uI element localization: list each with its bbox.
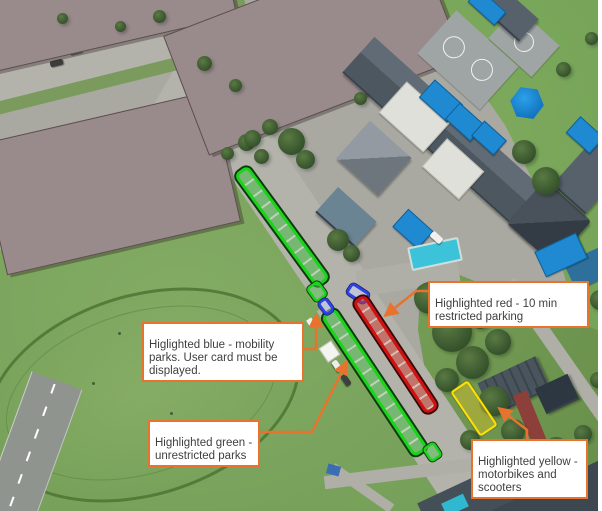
tree	[585, 32, 598, 45]
callout-yellow-motorbikes: Highlighted yellow - motorbikes and scoo…	[471, 439, 588, 499]
callout-green-unrestricted-parks: Highlighted green - unrestricted parks	[148, 420, 260, 467]
tree	[556, 62, 571, 77]
tree	[512, 140, 536, 164]
callout-red-text: Highlighted red - 10 min restricted park…	[435, 298, 557, 323]
tree	[197, 56, 212, 71]
field-marking	[170, 412, 173, 415]
callout-yellow-text: Highlighted yellow - motorbikes and scoo…	[478, 456, 578, 494]
callout-blue-text: Higlighted blue - mobility parks. User c…	[149, 339, 277, 377]
court-circle	[438, 32, 469, 63]
field-marking	[118, 332, 121, 335]
tree	[229, 79, 242, 92]
tree	[343, 245, 360, 262]
tree	[296, 150, 315, 169]
callout-green-text: Highlighted green - unrestricted parks	[155, 437, 252, 462]
tree	[115, 21, 126, 32]
tree	[485, 329, 511, 355]
court-circle	[466, 54, 497, 85]
tree	[532, 167, 560, 195]
tree	[221, 147, 234, 160]
tree	[262, 119, 278, 135]
tree	[57, 13, 68, 24]
callout-blue-mobility-parks: Higlighted blue - mobility parks. User c…	[142, 322, 304, 382]
aerial-parking-map: Higlighted blue - mobility parks. User c…	[0, 0, 602, 511]
tree	[254, 149, 269, 164]
image-right-margin	[598, 0, 602, 511]
tree	[456, 346, 489, 379]
field-marking	[92, 382, 95, 385]
tree	[354, 92, 367, 105]
tree	[244, 130, 261, 147]
tree	[153, 10, 166, 23]
callout-red-restricted-parking: Highlighted red - 10 min restricted park…	[428, 281, 589, 328]
